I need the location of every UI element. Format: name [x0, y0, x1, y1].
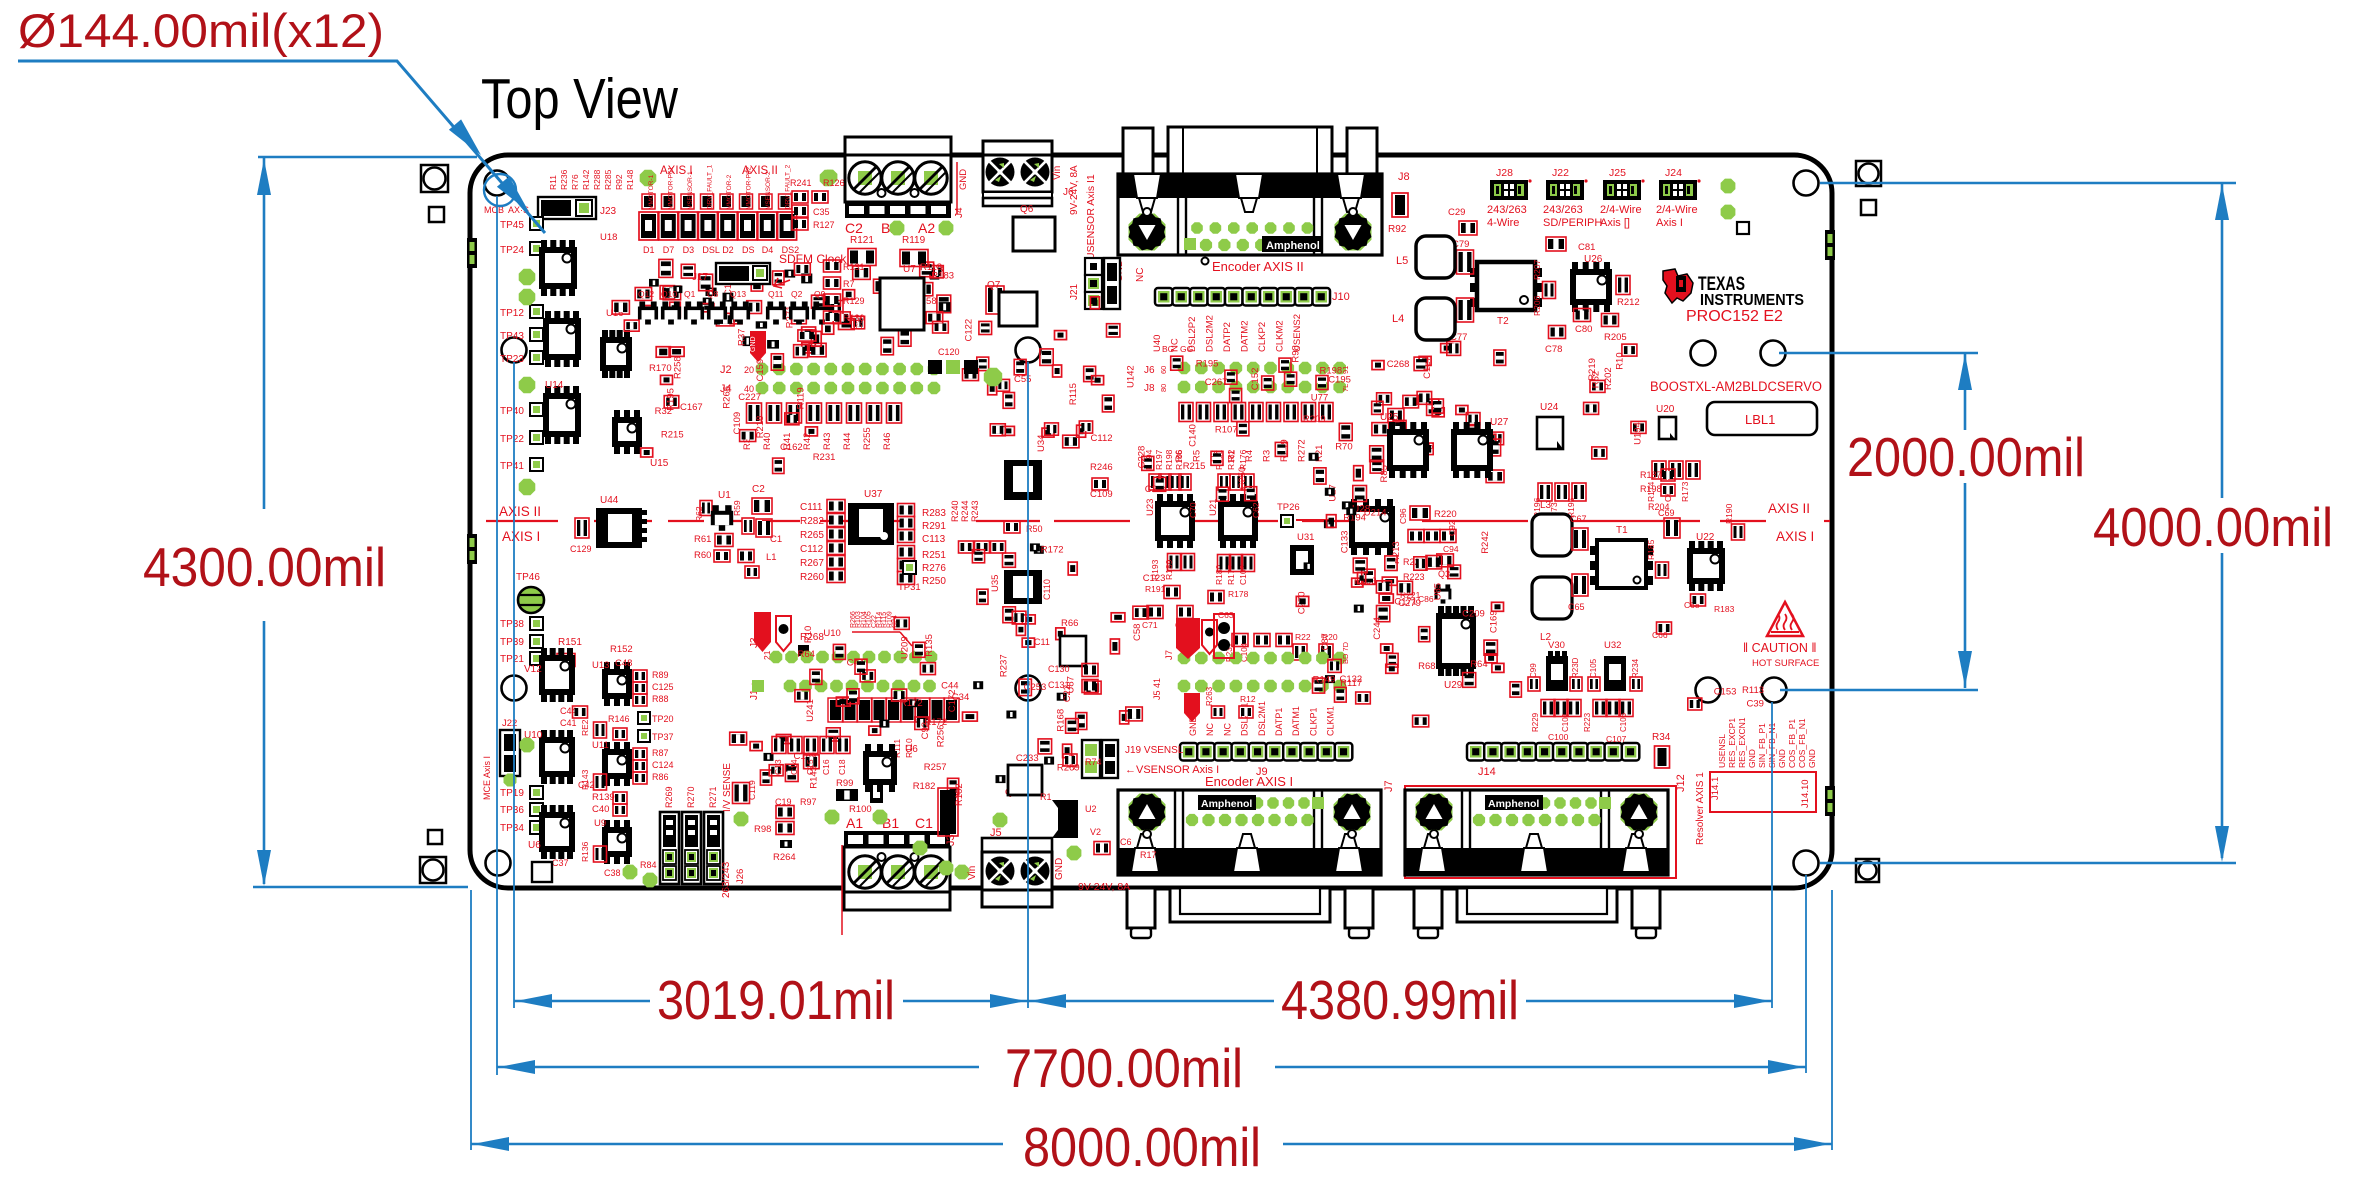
svg-text:U13: U13: [592, 660, 609, 671]
svg-text:R283: R283: [922, 508, 946, 519]
svg-text:J5 41: J5 41: [1152, 678, 1162, 700]
svg-text:R7: R7: [843, 279, 855, 289]
svg-text:C14: C14: [789, 759, 799, 775]
svg-text:BD 7D: BD 7D: [1341, 641, 1350, 664]
svg-text:R98: R98: [1291, 345, 1302, 362]
svg-text:Q2: Q2: [791, 289, 803, 299]
svg-text:R246: R246: [1090, 462, 1113, 473]
svg-text:R46: R46: [882, 433, 893, 450]
svg-text:R270: R270: [686, 786, 696, 808]
svg-text:J14.1: J14.1: [1710, 777, 1721, 800]
svg-text:C167: C167: [680, 402, 703, 413]
svg-text:C253: C253: [1024, 682, 1047, 693]
svg-text:D3: D3: [683, 245, 695, 255]
svg-text:DATM2: DATM2: [1240, 321, 1251, 353]
svg-text:AXIS II: AXIS II: [499, 504, 541, 519]
svg-text:U25: U25: [1380, 412, 1399, 423]
svg-text:R202: R202: [1603, 367, 1614, 390]
svg-text:C65: C65: [1568, 602, 1585, 612]
svg-text:C100: C100: [1548, 732, 1569, 742]
svg-text:C81: C81: [1578, 242, 1595, 253]
svg-text:R237: R237: [999, 654, 1010, 677]
svg-text:R190: R190: [1724, 503, 1734, 524]
svg-text:C129: C129: [570, 544, 592, 554]
svg-text:R236: R236: [559, 169, 569, 190]
svg-text:GND: GND: [958, 169, 969, 190]
svg-text:R142: R142: [581, 169, 591, 190]
svg-text:C41: C41: [560, 718, 577, 728]
svg-text:J7: J7: [1164, 650, 1175, 660]
svg-text:GND: GND: [1747, 749, 1757, 768]
svg-text:R3: R3: [1262, 450, 1273, 462]
svg-text:TP38: TP38: [500, 619, 524, 630]
svg-text:C250: C250: [1237, 467, 1248, 490]
svg-text:9V-24V, 8A: 9V-24V, 8A: [1078, 881, 1130, 893]
svg-text:TP45: TP45: [500, 220, 524, 231]
svg-text:D7: D7: [663, 245, 675, 255]
svg-text:C2: C2: [752, 484, 765, 495]
svg-text:R136: R136: [580, 841, 590, 862]
svg-text:A1: A1: [846, 815, 863, 831]
svg-text:DRV_FAULT_1: DRV_FAULT_1: [707, 164, 714, 209]
svg-text:C101: C101: [1561, 712, 1570, 732]
svg-text:Q13: Q13: [730, 289, 746, 299]
svg-text:SD/PERIPH: SD/PERIPH: [1543, 217, 1602, 229]
svg-text:R117: R117: [1340, 678, 1362, 689]
svg-text:3019.01mil: 3019.01mil: [657, 969, 895, 1031]
svg-text:R244: R244: [960, 500, 970, 522]
svg-text:R1: R1: [1040, 792, 1052, 802]
svg-text:R266: R266: [722, 386, 733, 409]
svg-text:R191: R191: [1145, 584, 1166, 594]
svg-text:C162: C162: [780, 442, 803, 453]
svg-text:DSL2M2: DSL2M2: [1205, 315, 1216, 352]
svg-text:Resolver AXIS 1: Resolver AXIS 1: [1695, 772, 1706, 845]
svg-text:243/263: 243/263: [1543, 204, 1583, 216]
svg-text:U7: U7: [903, 264, 916, 275]
svg-text:VSENSOR-2: VSENSOR-2: [765, 171, 772, 209]
svg-text:TP20: TP20: [652, 714, 674, 724]
svg-text:D1: D1: [643, 245, 655, 255]
svg-text:Top View: Top View: [481, 67, 679, 131]
svg-text:C16: C16: [821, 759, 831, 775]
svg-text:VMOTOR-1: VMOTOR-1: [648, 174, 655, 209]
svg-text:U24: U24: [1540, 402, 1559, 413]
svg-text:R260: R260: [800, 572, 824, 583]
svg-text:←VSENSOR Axis I: ←VSENSOR Axis I: [1125, 764, 1219, 776]
svg-text:DS: DS: [742, 245, 755, 255]
svg-text:TP43: TP43: [500, 331, 524, 342]
svg-text:U18: U18: [600, 232, 617, 243]
svg-text:‖ CAUTION ‖: ‖ CAUTION ‖: [1743, 641, 1817, 655]
svg-text:R198: R198: [1320, 365, 1343, 376]
svg-text:C94: C94: [1443, 544, 1459, 554]
svg-text:U32: U32: [1604, 640, 1621, 651]
svg-text:C105: C105: [1589, 658, 1598, 678]
svg-text:R198: R198: [1640, 484, 1662, 494]
svg-text:R113: R113: [1742, 685, 1764, 696]
svg-text:J10: J10: [1332, 291, 1350, 303]
svg-text:R87: R87: [652, 748, 669, 758]
svg-text:R218: R218: [755, 416, 766, 439]
svg-text:C119: C119: [747, 780, 757, 800]
svg-text:MCE Axis I: MCE Axis I: [482, 756, 492, 800]
svg-text:R100: R100: [849, 804, 872, 815]
svg-text:R23D: R23D: [1571, 657, 1580, 678]
svg-text:C152: C152: [1250, 368, 1261, 391]
svg-text:VMOTOR-P62: VMOTOR-P62: [746, 166, 753, 209]
svg-text:R269: R269: [664, 786, 674, 808]
svg-text:R182: R182: [913, 781, 936, 792]
svg-text:Q7: Q7: [987, 280, 1001, 291]
svg-text:RES_EXCN1: RES_EXCN1: [1737, 717, 1747, 768]
svg-text:R250: R250: [922, 576, 946, 587]
svg-text:Axis I: Axis I: [1656, 217, 1683, 229]
svg-text:CLKM2: CLKM2: [1275, 320, 1286, 352]
svg-text:AXIS I: AXIS I: [502, 529, 540, 544]
svg-text:C228: C228: [1136, 446, 1147, 469]
svg-text:J24: J24: [1665, 167, 1682, 179]
svg-text:R126: R126: [823, 178, 845, 188]
svg-text:R127: R127: [813, 220, 835, 230]
svg-text:J14.10: J14.10: [1800, 779, 1811, 808]
svg-text:C11: C11: [1034, 637, 1050, 647]
svg-text:TP24: TP24: [500, 245, 524, 256]
svg-text:D4: D4: [762, 245, 774, 255]
svg-text:C58: C58: [1132, 624, 1143, 641]
svg-text:VMOTOR-2: VMOTOR-2: [726, 174, 733, 209]
svg-text:C62: C62: [1251, 502, 1261, 518]
svg-text:TP41: TP41: [500, 461, 524, 472]
svg-text:J5: J5: [990, 827, 1002, 839]
svg-text:C133: C133: [1340, 531, 1351, 554]
svg-text:C140: C140: [1188, 424, 1199, 447]
svg-text:C209: C209: [1462, 609, 1485, 620]
svg-text:R22: R22: [1295, 632, 1311, 642]
svg-text:DATM1: DATM1: [1291, 706, 1301, 736]
svg-text:T2: T2: [1497, 316, 1509, 327]
svg-text:R195: R195: [666, 388, 677, 411]
svg-text:Vin: Vin: [967, 866, 978, 880]
svg-text:4300.00mil: 4300.00mil: [143, 536, 386, 598]
svg-text:TP19: TP19: [500, 788, 524, 799]
svg-text:Q1: Q1: [684, 289, 696, 299]
svg-text:R115: R115: [1068, 383, 1079, 405]
svg-text:J12: J12: [1675, 774, 1687, 792]
svg-text:C159: C159: [755, 359, 766, 382]
svg-text:C131: C131: [1048, 680, 1070, 690]
svg-text:60: 60: [1159, 366, 1168, 374]
svg-text:TP26: TP26: [1277, 502, 1300, 513]
svg-text:7700.00mil: 7700.00mil: [1005, 1037, 1243, 1099]
svg-text:R276: R276: [922, 563, 946, 574]
svg-text:R189: R189: [1164, 559, 1174, 580]
svg-text:J23: J23: [600, 206, 617, 217]
svg-text:VMOTOR-P61: VMOTOR-P61: [668, 166, 675, 209]
svg-text:U85: U85: [1433, 583, 1444, 600]
svg-text:R240: R240: [950, 500, 960, 522]
svg-text:C1: C1: [770, 534, 782, 545]
svg-text:DSL2M1: DSL2M1: [1257, 701, 1267, 736]
svg-text:U2: U2: [1085, 804, 1097, 814]
svg-text:J14: J14: [1478, 766, 1496, 778]
svg-text:C80: C80: [1575, 324, 1592, 335]
svg-text:R229: R229: [1531, 712, 1540, 732]
svg-text:R185: R185: [1646, 539, 1656, 560]
svg-text:R139: R139: [592, 792, 615, 803]
svg-text:R97: R97: [800, 797, 817, 807]
svg-text:R98: R98: [754, 824, 771, 835]
svg-text:2/4-Wire: 2/4-Wire: [1656, 204, 1698, 216]
svg-text:L5: L5: [1396, 255, 1408, 267]
svg-text:V12: V12: [524, 664, 542, 675]
svg-text:C13: C13: [773, 759, 783, 775]
svg-text:Amphenol: Amphenol: [1201, 798, 1252, 810]
svg-text:TP46: TP46: [516, 572, 540, 583]
svg-text:GND: GND: [1777, 749, 1787, 768]
svg-text:AXIS I: AXIS I: [1776, 529, 1814, 544]
svg-text:C37: C37: [552, 858, 569, 868]
svg-text:J17: J17: [692, 272, 709, 283]
svg-text:R205: R205: [1604, 332, 1627, 343]
svg-text:C78: C78: [1545, 344, 1562, 355]
svg-text:TP21: TP21: [500, 654, 524, 665]
svg-text:R89: R89: [652, 670, 669, 680]
svg-text:C111: C111: [800, 502, 823, 513]
svg-text:R62: R62: [1590, 371, 1601, 388]
svg-text:LBL1: LBL1: [1745, 412, 1775, 427]
svg-text:R243: R243: [970, 500, 980, 522]
svg-text:R172: R172: [1041, 544, 1064, 555]
svg-text:R195: R195: [1196, 359, 1219, 370]
svg-text:GND: GND: [1054, 858, 1065, 880]
svg-text:TP36: TP36: [500, 805, 524, 816]
svg-text:NC: NC: [1205, 723, 1215, 736]
svg-text:C34: C34: [952, 692, 969, 703]
svg-text:GG: GG: [1180, 344, 1193, 354]
svg-text:R76: R76: [570, 174, 580, 190]
svg-text:4380.99mil: 4380.99mil: [1281, 969, 1519, 1031]
svg-text:Q11: Q11: [768, 289, 784, 299]
svg-text:R92: R92: [614, 174, 624, 190]
svg-text:R64: R64: [798, 649, 815, 660]
svg-text:U27: U27: [1490, 417, 1509, 428]
svg-text:U35: U35: [990, 575, 1001, 592]
svg-text:U34: U34: [1036, 435, 1047, 452]
svg-text:R61: R61: [694, 534, 711, 545]
svg-text:C92: C92: [1447, 520, 1457, 536]
svg-text:4-Wire: 4-Wire: [1487, 217, 1519, 229]
svg-text:C2: C2: [845, 220, 863, 236]
svg-text:R265: R265: [800, 530, 824, 541]
svg-text:V2: V2: [1090, 827, 1101, 837]
svg-text:PROC152 E2: PROC152 E2: [1686, 308, 1783, 325]
svg-text:8000.00mil: 8000.00mil: [1023, 1116, 1261, 1178]
svg-text:C87: C87: [1320, 633, 1331, 650]
svg-text:80: 80: [1159, 384, 1168, 392]
svg-text:AXIS II: AXIS II: [1768, 501, 1810, 516]
svg-text:Q10: Q10: [661, 289, 677, 299]
svg-text:USENSL: USENSL: [1717, 734, 1727, 768]
svg-text:DATP2: DATP2: [1222, 322, 1233, 352]
svg-text:R198: R198: [1164, 449, 1174, 470]
svg-text:J28: J28: [1496, 167, 1513, 179]
svg-text:R285: R285: [603, 169, 613, 190]
svg-text:R10: R10: [1614, 352, 1625, 369]
svg-text:C279: C279: [1398, 598, 1421, 609]
svg-text:U142: U142: [1126, 365, 1137, 388]
svg-text:243/263: 243/263: [1487, 204, 1527, 216]
svg-text:BG: BG: [1162, 344, 1174, 354]
svg-text:U10: U10: [823, 628, 840, 639]
svg-text:Axis []: Axis []: [1600, 217, 1630, 229]
svg-text:C107: C107: [1606, 734, 1627, 744]
svg-text:R215: R215: [1183, 461, 1206, 472]
svg-text:C48: C48: [615, 658, 632, 669]
svg-text:C124: C124: [652, 760, 674, 770]
svg-text:R11: R11: [548, 175, 558, 190]
svg-text:R152: R152: [610, 644, 633, 655]
svg-text:TP12: TP12: [500, 308, 524, 319]
svg-text:L1: L1: [766, 552, 777, 563]
svg-text:R263: R263: [1205, 686, 1214, 706]
svg-text:C113: C113: [922, 534, 946, 545]
svg-text:R102: R102: [954, 783, 965, 806]
svg-text:I/V SENSE: I/V SENSE: [722, 763, 733, 812]
svg-text:NC: NC: [1222, 723, 1232, 736]
svg-text:R267: R267: [800, 558, 824, 569]
svg-text:9V-24V, 8A: 9V-24V, 8A: [1069, 165, 1080, 215]
svg-text:U14: U14: [545, 380, 564, 391]
svg-text:R255: R255: [862, 427, 873, 450]
svg-text:TP37: TP37: [652, 732, 674, 742]
svg-text:R17: R17: [1140, 850, 1157, 860]
svg-text:R215: R215: [661, 430, 684, 441]
svg-text:C227: C227: [738, 392, 761, 403]
svg-text:C267: C267: [1205, 377, 1228, 388]
svg-text:R121: R121: [850, 235, 874, 246]
svg-text:C29: C29: [1448, 207, 1465, 218]
svg-text:Q12: Q12: [638, 289, 654, 299]
svg-text:DATP1: DATP1: [1274, 708, 1284, 736]
svg-text:R187: R187: [1640, 470, 1662, 480]
svg-text:C122: C122: [963, 319, 974, 342]
svg-text:R86: R86: [652, 772, 669, 782]
svg-text:C40: C40: [592, 804, 609, 815]
svg-text:J2: J2: [720, 364, 732, 376]
svg-text:263/243: 263/243: [721, 861, 732, 898]
svg-text:INSTRUMENTS: INSTRUMENTS: [1700, 292, 1804, 309]
svg-text:TP34: TP34: [500, 823, 524, 834]
svg-text:DSL: DSL: [702, 245, 720, 255]
svg-text:R59: R59: [732, 500, 742, 516]
svg-text:SIN_FB_P1: SIN_FB_P1: [1757, 723, 1767, 768]
svg-text:TP40: TP40: [500, 406, 524, 417]
svg-text:R209: R209: [1303, 414, 1326, 425]
svg-text:R68: R68: [1418, 661, 1435, 672]
svg-text:Vin: Vin: [1052, 166, 1063, 180]
svg-text:T1: T1: [1616, 525, 1628, 536]
svg-text:U6: U6: [905, 744, 918, 755]
svg-text:C69: C69: [1658, 508, 1675, 518]
svg-text:C110: C110: [1042, 579, 1052, 600]
svg-text:U241: U241: [805, 699, 816, 722]
svg-text:R60: R60: [694, 550, 711, 561]
svg-text:R242: R242: [1480, 531, 1491, 554]
svg-text:C112: C112: [1091, 433, 1113, 444]
svg-text:R207: R207: [1532, 259, 1542, 280]
svg-text:R70: R70: [1335, 442, 1352, 453]
svg-text:GND: GND: [1807, 749, 1817, 768]
svg-text:U77: U77: [1311, 393, 1328, 404]
svg-text:J7: J7: [1383, 780, 1395, 792]
svg-text:COS_FB_N1: COS_FB_N1: [1797, 718, 1807, 768]
svg-text:2000.00mil: 2000.00mil: [1847, 426, 2085, 488]
svg-text:R258: R258: [673, 356, 684, 379]
svg-text:J22: J22: [502, 718, 517, 729]
svg-text:R272: R272: [1297, 439, 1308, 462]
svg-text:U26: U26: [1584, 254, 1603, 265]
svg-text:U9: U9: [594, 818, 606, 829]
svg-text:C32: C32: [854, 314, 864, 330]
svg-text:C19: C19: [775, 797, 792, 807]
svg-text:R271: R271: [708, 786, 718, 808]
svg-text:CLKP2: CLKP2: [1257, 322, 1268, 352]
svg-text:NC: NC: [1135, 268, 1146, 282]
svg-text:C67: C67: [1570, 514, 1587, 524]
svg-text:R172: R172: [900, 698, 923, 709]
svg-text:TP31: TP31: [898, 582, 921, 593]
svg-text:R288: R288: [592, 169, 602, 190]
svg-text:J4: J4: [954, 207, 965, 218]
svg-text:R178: R178: [1228, 589, 1249, 599]
svg-text:R264: R264: [773, 852, 796, 863]
svg-text:C244: C244: [1372, 617, 1383, 640]
svg-text:R251: R251: [922, 550, 946, 561]
svg-text:R170: R170: [649, 363, 672, 374]
svg-text:J25: J25: [1609, 167, 1626, 179]
svg-text:R206: R206: [1532, 295, 1542, 316]
svg-text:R151: R151: [558, 637, 582, 648]
svg-text:R146: R146: [608, 714, 630, 724]
svg-text:L4: L4: [1392, 313, 1404, 325]
svg-text:CLKP1: CLKP1: [1308, 707, 1318, 736]
svg-text:R149: R149: [1313, 675, 1336, 686]
svg-text:J22: J22: [1552, 167, 1569, 179]
svg-text:J26: J26: [735, 869, 746, 884]
svg-text:C268: C268: [1387, 359, 1410, 370]
svg-text:R183: R183: [1714, 604, 1735, 614]
svg-text:Amphenol: Amphenol: [1488, 798, 1539, 810]
svg-text:C99: C99: [1529, 663, 1538, 678]
svg-text:U1: U1: [718, 490, 731, 501]
svg-text:C70: C70: [1188, 502, 1198, 518]
svg-text:COS_FB_P1: COS_FB_P1: [1787, 719, 1797, 768]
svg-text:Q8: Q8: [707, 289, 719, 299]
svg-text:DSL2P1: DSL2P1: [1240, 702, 1250, 736]
svg-text:R241: R241: [790, 178, 812, 188]
svg-text:C169: C169: [1488, 610, 1499, 633]
svg-text:R92: R92: [1388, 224, 1407, 235]
svg-text:R212: R212: [1617, 297, 1640, 308]
svg-text:J6: J6: [1144, 365, 1155, 376]
svg-text:R197: R197: [1154, 449, 1164, 470]
svg-text:U11: U11: [592, 740, 609, 751]
svg-text:C96: C96: [1398, 508, 1408, 524]
svg-text:R182: R182: [1226, 449, 1236, 470]
svg-text:V30: V30: [1548, 640, 1565, 651]
svg-text:USENSOR Axis I1: USENSOR Axis I1: [1085, 174, 1097, 260]
